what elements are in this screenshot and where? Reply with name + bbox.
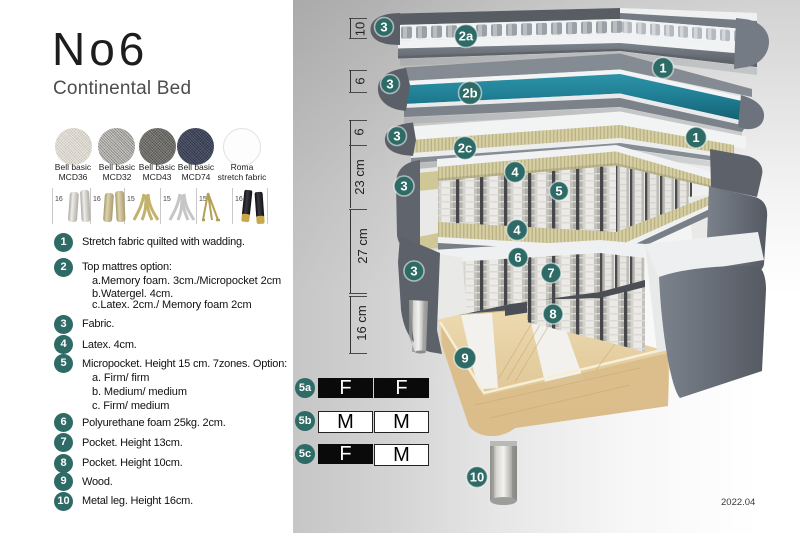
svg-text:2a: 2a: [459, 29, 474, 44]
svg-text:3: 3: [393, 129, 400, 144]
svg-text:6: 6: [514, 250, 521, 265]
svg-text:4: 4: [513, 223, 521, 238]
svg-text:1: 1: [659, 61, 666, 76]
svg-text:9: 9: [461, 351, 468, 366]
svg-text:8: 8: [549, 307, 556, 322]
svg-text:7: 7: [547, 266, 554, 281]
svg-text:3: 3: [410, 264, 417, 279]
svg-text:3: 3: [380, 20, 387, 35]
svg-text:10: 10: [470, 470, 484, 485]
svg-text:3: 3: [400, 179, 407, 194]
svg-text:4: 4: [511, 165, 519, 180]
svg-text:3: 3: [386, 77, 393, 92]
svg-text:2c: 2c: [458, 141, 472, 156]
svg-text:2b: 2b: [462, 86, 477, 101]
svg-text:5: 5: [555, 184, 562, 199]
svg-text:1: 1: [692, 130, 699, 145]
